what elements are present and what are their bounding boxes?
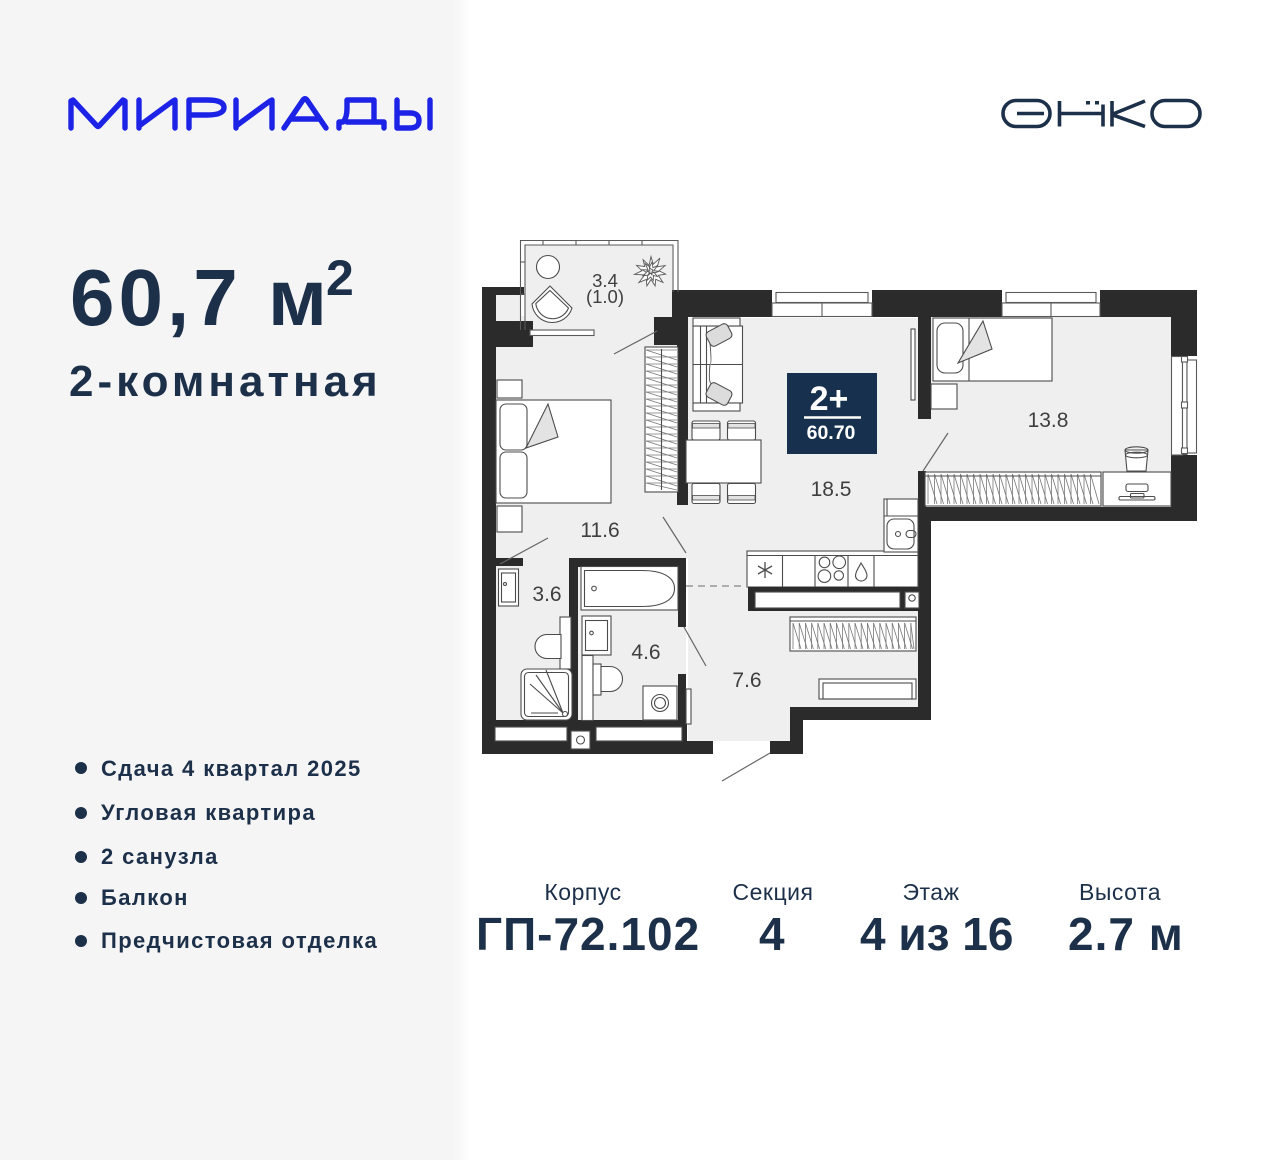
svg-text:4.6: 4.6 [631, 641, 660, 664]
svg-text:18.5: 18.5 [811, 478, 852, 501]
svg-text:11.6: 11.6 [580, 519, 619, 542]
svg-text:13.8: 13.8 [1028, 409, 1069, 432]
svg-text:2+: 2+ [810, 380, 849, 418]
svg-text:60.70: 60.70 [807, 422, 856, 444]
svg-text:(1.0): (1.0) [586, 286, 624, 307]
svg-text:7.6: 7.6 [732, 669, 761, 692]
svg-text:3.6: 3.6 [532, 583, 561, 606]
